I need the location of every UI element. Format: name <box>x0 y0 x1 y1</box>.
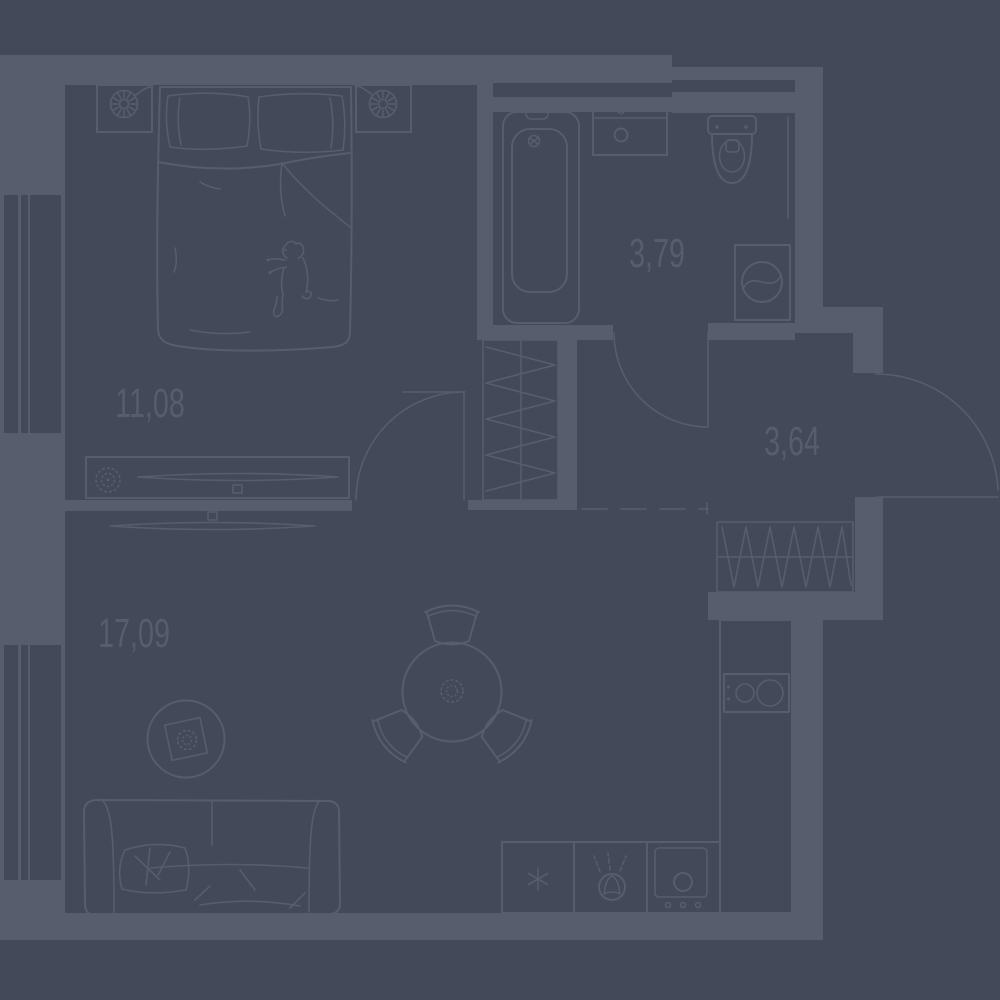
water-spray-icon <box>594 853 626 872</box>
bedroom-area: 11,08 <box>115 381 185 426</box>
window-frame-line <box>0 645 4 880</box>
wall-left-bottom-block <box>0 880 65 940</box>
window-glass-line <box>28 645 30 880</box>
fridge <box>502 842 574 913</box>
oven <box>647 842 720 913</box>
wall-topright-inner-band <box>672 92 795 113</box>
wall-bedroom-living-divider <box>0 500 352 511</box>
toilet <box>708 116 756 183</box>
wall-left-top-block <box>0 55 65 195</box>
washing-machine <box>735 245 790 320</box>
floor-plan-canvas: 11,08 <box>0 0 1000 1000</box>
cord <box>136 87 152 95</box>
bathroom-area-label: 3,79 <box>629 231 685 276</box>
nightstand-left <box>97 85 152 132</box>
dog-print <box>267 241 312 316</box>
living-kitchen: 17,09 <box>84 512 792 915</box>
chair <box>425 606 479 645</box>
window-glass-line <box>18 195 21 433</box>
kitchen <box>502 620 792 913</box>
ventilation-shaft <box>483 340 558 500</box>
chair <box>367 700 431 767</box>
table-plant-icon <box>441 680 463 702</box>
wall-top-bathroom-slot <box>492 83 672 97</box>
wall-entry-pier <box>853 333 883 373</box>
double-bed <box>157 87 351 351</box>
wardrobe <box>717 522 853 592</box>
bathroom: 3,79 <box>503 105 790 427</box>
starburst-clock-icon <box>370 91 397 118</box>
living-area-label: 17,09 <box>98 611 170 656</box>
dining-table <box>367 606 537 767</box>
living-area: 17,09 <box>98 611 170 656</box>
nightstand-right <box>355 85 411 132</box>
floor-plan-svg: 11,08 <box>0 0 1000 1000</box>
table-plant-icon <box>447 686 458 697</box>
wall-bathroom-bottom-right <box>708 323 795 340</box>
window-frame-line <box>61 195 65 433</box>
hallway: 3,64 <box>582 374 998 592</box>
wall-shaft-bottom <box>468 500 577 510</box>
wall-bathroom-left <box>477 55 493 340</box>
pillow-crease <box>330 98 333 148</box>
hallway-area: 3,64 <box>764 419 820 464</box>
dresser <box>86 457 349 498</box>
bedroom-door <box>356 392 465 500</box>
kitchen-sink <box>574 842 647 913</box>
wall-right-kitchen <box>793 620 823 940</box>
plant-pot-icon <box>96 468 120 492</box>
wall-topright-slot <box>672 80 795 92</box>
hob <box>724 674 789 712</box>
sofa-pillow <box>120 844 189 892</box>
window-frame-line <box>0 195 4 433</box>
wall-top-main <box>0 55 672 85</box>
wall-right-upper <box>795 78 823 333</box>
hallway-area-label: 3,64 <box>764 419 820 464</box>
bedroom-area-label: 11,08 <box>115 381 185 426</box>
window-frame-line <box>61 645 65 880</box>
bedroom-window <box>0 195 65 433</box>
bed-outline <box>157 87 351 351</box>
bedroom: 11,08 <box>86 85 411 498</box>
wall-shaft-right <box>558 335 577 510</box>
blanket <box>158 153 350 334</box>
entrance-door <box>876 374 998 497</box>
window-glass-line <box>28 195 30 433</box>
living-window <box>0 645 65 880</box>
round-rug <box>148 701 225 778</box>
chair <box>473 700 537 767</box>
bathroom-area: 3,79 <box>629 231 685 276</box>
snowflake-icon <box>529 868 548 890</box>
wall-bottom <box>0 913 823 940</box>
door-swing-arc <box>356 392 464 500</box>
starburst-clock-icon <box>111 91 138 118</box>
bathroom-door <box>614 333 708 427</box>
washbasin <box>593 105 667 155</box>
wall-bathroom-bottom-left <box>477 325 613 340</box>
cord <box>355 86 371 94</box>
door-swing-arc <box>614 333 708 427</box>
wall-tv <box>110 512 315 530</box>
tv-icon <box>138 474 338 494</box>
sofa <box>84 800 340 915</box>
pillow-crease <box>178 98 181 145</box>
window-glass-line <box>18 645 21 880</box>
kitchen-counter <box>720 620 792 913</box>
wall-left-mid-block <box>0 433 65 645</box>
wall-entry-jog <box>795 307 883 333</box>
bathtub <box>503 109 579 323</box>
door-swing-arc <box>876 374 998 490</box>
wall-wardrobe-band <box>708 592 883 620</box>
